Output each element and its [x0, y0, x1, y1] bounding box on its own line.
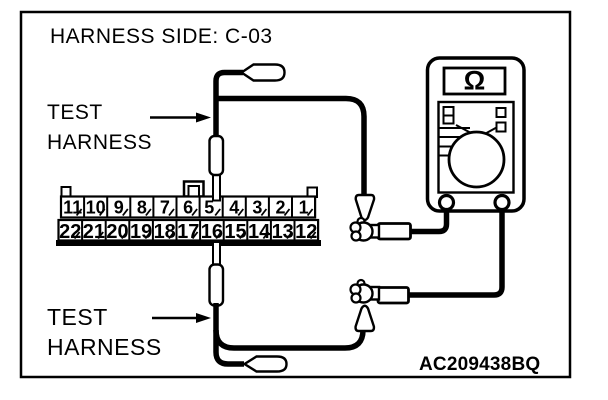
probe-sleeve: [210, 265, 224, 306]
test-harness-label-top-line1: TEST: [47, 101, 103, 124]
clip-thumb-grip: [352, 294, 361, 303]
pin-number: 10: [86, 198, 106, 218]
rotary-dial: [449, 132, 504, 187]
lead-wire-branch: [216, 326, 363, 348]
pin-number: 9: [114, 198, 124, 218]
pin-number: 14: [248, 221, 271, 243]
terminal-lug: [242, 65, 285, 81]
banana-plug: [356, 195, 374, 220]
meter-terminal-left: [440, 196, 454, 210]
pin-number: 1: [299, 198, 309, 218]
meter-terminal-right: [495, 196, 509, 210]
pin-number: 17: [177, 221, 199, 243]
test-harness-arrow-bottom: [152, 313, 211, 323]
pin-number: 22: [59, 221, 81, 243]
pin-number: 6: [183, 198, 193, 218]
connector-pinout: 11 10 9 8 7 6 5 4 3 2 1 22 21 20 19 18 1…: [56, 175, 321, 267]
pin-number: 4: [229, 198, 239, 218]
pin-number: 16: [201, 221, 223, 243]
ohm-symbol: Ω: [464, 66, 486, 96]
test-harness-label-top-line2: HARNESS: [47, 131, 152, 154]
clip-adapter-bottom: [351, 280, 409, 303]
pin-number: 13: [272, 221, 294, 243]
pin-number: 20: [106, 221, 128, 243]
lead-wire: [216, 303, 244, 364]
probe-sleeve: [210, 136, 224, 175]
pin-number: 11: [63, 198, 82, 218]
clip-sleeve: [378, 224, 411, 240]
test-harness-label-bottom-line1: TEST: [47, 304, 108, 330]
pin-number: 2: [275, 198, 285, 218]
meter-lead-wire-right: [408, 203, 503, 295]
pin-number: 5: [204, 198, 214, 218]
wiring-diagram: HARNESS SIDE: C-03 TEST HARNESS TEST HAR…: [0, 0, 608, 400]
pin-number: 15: [224, 221, 246, 243]
test-harness-arrow-top: [150, 113, 211, 123]
banana-plug: [356, 306, 374, 331]
pin-number: 21: [83, 221, 105, 243]
pin-numbers-bottom-row: 22 21 20 19 18 17 16 15 14 13 12: [59, 221, 317, 243]
clip-adapter-top: [351, 218, 411, 241]
clip-sleeve: [378, 288, 409, 304]
pin-number: 7: [160, 198, 170, 218]
test-probe-pin-16: [213, 242, 220, 266]
connector-lock-tab-hole: [189, 186, 200, 197]
pin-number: 3: [252, 198, 262, 218]
terminal-lug: [245, 357, 287, 372]
service-manual-figure: HARNESS SIDE: C-03 TEST HARNESS TEST HAR…: [0, 0, 608, 400]
pin-number: 12: [295, 221, 317, 243]
lead-wire-branch: [216, 99, 364, 200]
multimeter: Ω: [428, 58, 525, 211]
figure-title: HARNESS SIDE: C-03: [50, 25, 273, 48]
figure-code: AC209438BQ: [419, 354, 540, 375]
pin-number: 18: [154, 221, 176, 243]
clip-thumb-grip: [352, 232, 361, 241]
connector-corner-tab-left: [62, 187, 71, 197]
test-harness-lead-bottom: [210, 265, 374, 372]
pin-number: 8: [137, 198, 147, 218]
lead-wire: [216, 73, 243, 138]
test-harness-label-bottom-line2: HARNESS: [47, 334, 162, 360]
pin-number: 19: [130, 221, 152, 243]
